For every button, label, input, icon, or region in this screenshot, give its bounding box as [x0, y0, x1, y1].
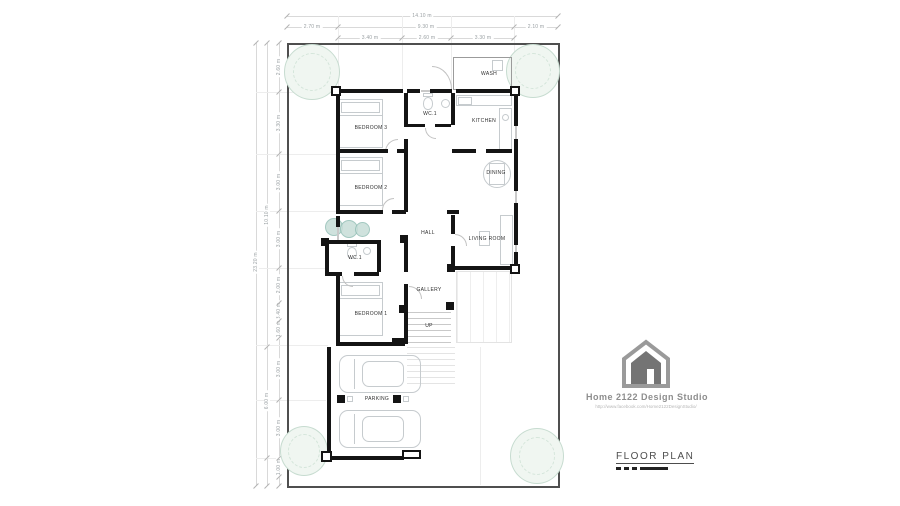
room-label: HALL: [421, 230, 435, 236]
car-icon: [339, 410, 421, 448]
wall-segment: [486, 149, 512, 153]
column-pad: [403, 396, 409, 402]
room-label: UP: [425, 323, 433, 329]
wall-segment: [327, 347, 331, 457]
wall-segment: [377, 244, 381, 272]
corner-post: [447, 264, 455, 272]
wall-segment: [435, 124, 451, 127]
wall-segment: [336, 93, 340, 151]
stove-icon: [458, 97, 472, 105]
dimension-tick: [555, 24, 561, 30]
dimension-label: 2.00 m: [276, 275, 282, 296]
window: [337, 227, 339, 240]
bed-bedroom3: [338, 99, 383, 148]
wall-segment: [336, 342, 392, 346]
scale-bar: [616, 467, 668, 470]
room-label: WC.1: [348, 255, 362, 261]
wall-segment: [341, 89, 403, 93]
window: [515, 245, 517, 252]
window: [515, 126, 517, 139]
dimension-label: 3.00 m: [276, 172, 282, 193]
washing-machine-icon: [492, 60, 503, 71]
wall-segment: [455, 266, 512, 270]
wall-segment: [325, 244, 329, 272]
wall-segment: [514, 93, 518, 126]
bed-bedroom1: [338, 282, 383, 336]
dimension-label: 23.20 m: [253, 250, 259, 273]
dimension-label: 3.00 m: [276, 229, 282, 250]
wall-segment: [336, 210, 383, 214]
bed-bedroom2: [338, 157, 383, 206]
wall-segment: [325, 240, 381, 244]
wall-segment: [404, 284, 408, 344]
corner-post: [321, 238, 329, 246]
dimension-label: 3.30 m: [276, 113, 282, 134]
shrub-icon: [355, 222, 370, 237]
room-label: BEDROOM 3: [355, 125, 388, 131]
wall-segment: [451, 215, 455, 234]
dimension-label: 2.60 m: [417, 35, 438, 41]
studio-url: http://www.facebook.com/Home2122DesignSt…: [586, 404, 706, 409]
toilet-icon: [423, 97, 433, 110]
scale-bar-segment: [640, 467, 668, 470]
wall-segment: [336, 216, 340, 227]
scale-bar-segment: [624, 467, 629, 470]
wall-segment: [451, 93, 455, 125]
corner-post: [400, 235, 408, 243]
dimension-tick: [555, 13, 561, 19]
room-label: WC.1: [423, 111, 437, 117]
dimension-label: 2.70 m: [302, 24, 323, 30]
dimension-tick: [264, 483, 270, 489]
floor-plan-sheet: 14.10 m2.70 m9.30 m2.10 m3.40 m2.60 m3.3…: [0, 0, 900, 506]
dimension-label: 9.30 m: [416, 24, 437, 30]
corner-post: [399, 305, 407, 313]
wall-segment: [331, 456, 404, 460]
studio-name: Home 2122 Design Studio: [586, 392, 706, 402]
room-label: KITCHEN: [472, 118, 496, 124]
dimension-label: 3.00 m: [276, 359, 282, 380]
wall-segment: [430, 89, 452, 93]
dimension-tick: [253, 483, 259, 489]
column: [393, 395, 401, 403]
wall-segment: [336, 153, 340, 212]
studio-logo-icon: [618, 338, 674, 390]
corner-post: [331, 86, 341, 96]
gate-post: [402, 450, 421, 459]
dimension-tick: [276, 483, 282, 489]
wall-segment: [404, 93, 408, 126]
dimension-label: 2.10 m: [526, 24, 547, 30]
wall-segment: [407, 89, 420, 93]
dimension-label: 6.00 m: [264, 391, 270, 412]
tree-icon: [510, 428, 564, 484]
wall-segment: [514, 203, 518, 245]
wall-segment: [404, 239, 408, 272]
porch-steps: [456, 271, 512, 343]
dimension-label: 10.10 m: [264, 203, 270, 226]
dimension-label: 3.00 m: [276, 418, 282, 439]
wall-segment: [404, 139, 408, 212]
corner-post: [446, 302, 454, 310]
wall-segment: [514, 139, 518, 191]
dimension-label: 3.40 m: [360, 35, 381, 41]
wall-segment: [336, 149, 388, 153]
sink-icon: [441, 99, 450, 108]
car-icon: [339, 355, 421, 393]
sink-icon: [363, 247, 371, 255]
scale-bar-segment: [632, 467, 637, 470]
kitchen-sink-icon: [502, 114, 509, 121]
scale-bar-segment: [616, 467, 621, 470]
window: [421, 90, 430, 92]
drawing-title: FLOOR PLAN: [616, 451, 694, 464]
wall-segment: [447, 210, 459, 214]
room-label: LIVING ROOM: [469, 236, 506, 242]
column: [337, 395, 345, 403]
dimension-label: 2.60 m: [276, 57, 282, 78]
room-label: BEDROOM 2: [355, 185, 388, 191]
wall-segment: [456, 89, 512, 93]
corner-post: [321, 451, 332, 462]
dimension-label: 14.10 m: [410, 13, 433, 19]
corner-post: [392, 338, 405, 346]
window: [515, 191, 517, 203]
dimension-label: 3.30 m: [473, 35, 494, 41]
wall-segment: [336, 276, 340, 344]
wall-segment: [354, 272, 379, 276]
room-label: GALLERY: [416, 287, 441, 293]
dim-line-left-mid: [267, 43, 268, 486]
room-label: WASH: [481, 71, 497, 77]
column-pad: [347, 396, 353, 402]
wall-segment: [452, 149, 476, 153]
room-label: PARKING: [365, 396, 389, 402]
room-label: BEDROOM 1: [355, 311, 388, 317]
corner-post: [510, 264, 520, 274]
room-label: DINING: [486, 170, 505, 176]
corner-post: [510, 86, 520, 96]
